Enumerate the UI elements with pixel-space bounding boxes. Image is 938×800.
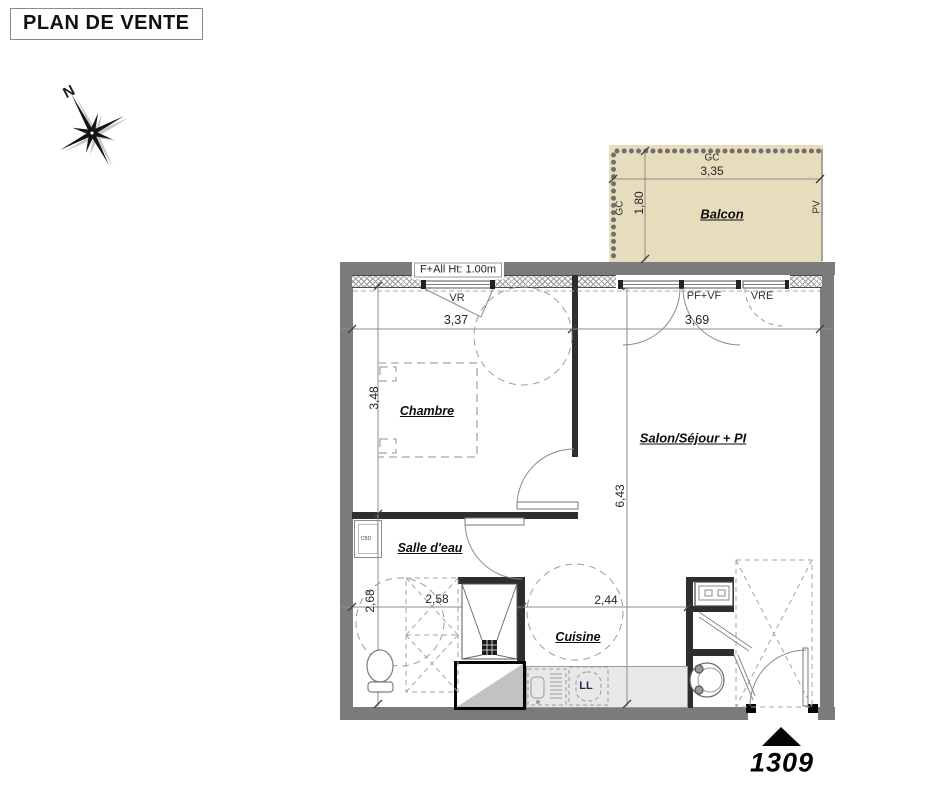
technical-shaft xyxy=(454,661,526,710)
balcony-pv-label: PV xyxy=(812,200,823,213)
closet-wall-top xyxy=(686,577,734,582)
wall-left xyxy=(340,262,353,720)
closet-wall-right-top xyxy=(728,577,734,607)
entrance-arrow xyxy=(762,727,801,746)
salon-height-dim: 6,43 xyxy=(613,484,627,507)
kitchen-counter xyxy=(526,666,688,708)
vr-label: VR xyxy=(449,292,464,304)
closet-divider-2 xyxy=(693,649,734,656)
floor-plan-canvas: PLAN DE VENTE xyxy=(0,0,938,800)
balcony-gc-top-label: GC xyxy=(705,153,720,164)
balcony-width-dim: 3,35 xyxy=(700,164,723,178)
shower-wall-right xyxy=(517,577,525,661)
chambre-height-dim: 3,48 xyxy=(367,386,381,409)
window-gap-salon xyxy=(616,275,790,288)
vre-label: VRE xyxy=(751,290,774,302)
shower-symbol xyxy=(462,584,517,659)
entry-clearance-box xyxy=(736,560,812,707)
compass-north-label: N xyxy=(60,82,78,102)
door-chambre xyxy=(517,449,578,509)
cuisine-label: Cuisine xyxy=(555,630,600,644)
balcony-depth-dim: 1,80 xyxy=(632,191,646,214)
wall-right xyxy=(820,262,834,720)
cuisine-width-dim: 2,44 xyxy=(594,593,617,607)
entry-door-jamb-left xyxy=(746,704,756,713)
ll-label: LL xyxy=(579,680,592,692)
salledeau-height-dim: 2,68 xyxy=(363,589,377,612)
salledeau-width-dim: 2,58 xyxy=(425,592,448,606)
door-salledeau xyxy=(465,518,524,579)
shower-wall-top xyxy=(458,577,524,584)
wall-chambre-salon xyxy=(572,275,578,457)
compass-rose-icon xyxy=(40,77,145,183)
door-entry xyxy=(750,648,808,706)
wall-chambre-salledeau xyxy=(352,512,578,519)
pf-vf-label: PF+VF xyxy=(687,290,722,302)
chambre-label: Chambre xyxy=(400,404,454,418)
lot-number: 1309 xyxy=(750,748,814,779)
salon-label: Salon/Séjour + PI xyxy=(640,431,747,446)
chambre-width-dim: 3,37 xyxy=(444,313,468,327)
water-heater-symbol xyxy=(690,663,724,697)
clearance-circles xyxy=(356,287,623,666)
closet-divider-1 xyxy=(693,606,734,612)
cbd-label: CBD xyxy=(361,536,372,542)
balcony-gc-left-label: GC xyxy=(615,201,626,216)
window-height-note: F+All Ht: 1.00m xyxy=(414,263,502,278)
plan-title: PLAN DE VENTE xyxy=(10,8,203,40)
closet-doors xyxy=(699,612,755,700)
salledeau-label: Salle d'eau xyxy=(398,541,463,555)
toilet-symbol xyxy=(367,650,393,692)
balcony-label: Balcon xyxy=(700,207,743,222)
entry-door-jamb-right xyxy=(808,704,818,713)
salon-width-dim: 3,69 xyxy=(685,313,709,327)
